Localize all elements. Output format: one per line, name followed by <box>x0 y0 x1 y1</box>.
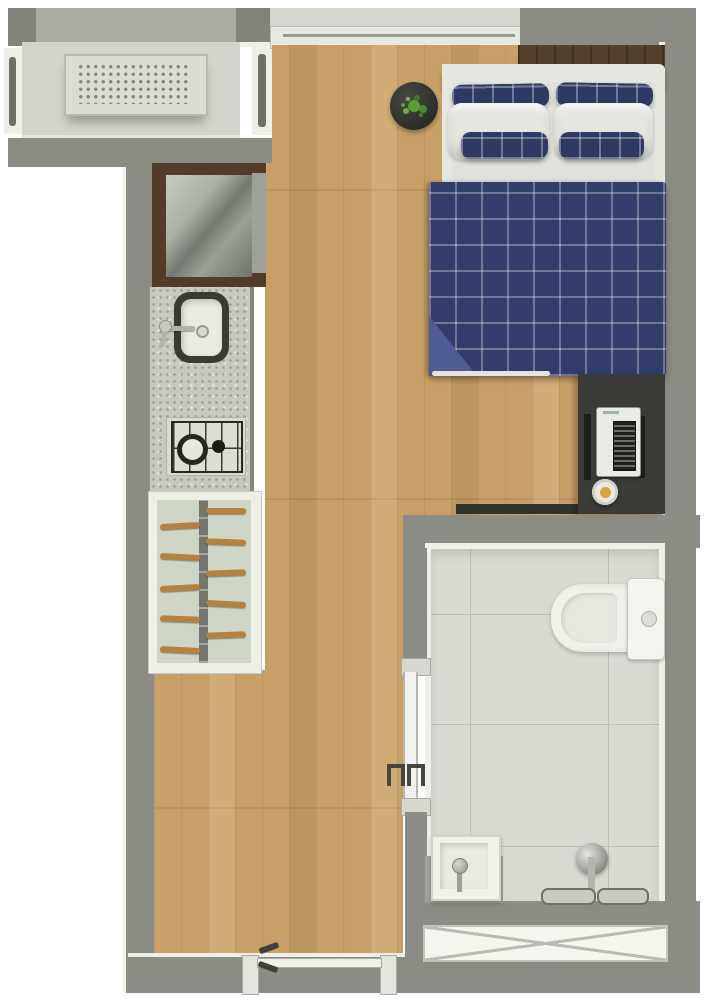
top-wall-right <box>520 8 666 45</box>
bathroom-vent-window <box>423 925 668 962</box>
bathroom-door-handle-outer <box>387 764 405 786</box>
bed-rail-right <box>654 68 665 186</box>
shower-grab-bar-right <box>597 888 649 905</box>
burner-small <box>212 440 225 453</box>
louver-vent-left-slot <box>9 57 16 126</box>
drying-rack-rail <box>199 500 208 663</box>
sheet-edge <box>432 371 550 376</box>
bathroom-west-wall-upper <box>403 548 427 662</box>
entry-door-jamb-right <box>380 955 397 995</box>
bottom-wall <box>126 957 700 993</box>
top-window-outer-band <box>270 8 523 26</box>
washbasin-faucet-knob <box>452 858 468 874</box>
rack-rung <box>206 508 246 514</box>
bathroom-west-wall-lower <box>405 812 427 912</box>
bed-duvet <box>429 182 666 376</box>
burner-large <box>177 434 208 465</box>
balcony-top-wall <box>8 8 242 42</box>
refrigerator-top <box>166 175 252 277</box>
plant-leaves <box>408 100 420 112</box>
floor-plan <box>0 0 704 1000</box>
ac-condenser-grille <box>77 63 191 104</box>
desk-side-bar-left <box>584 414 591 480</box>
floor-bottom-edge-line <box>128 953 405 957</box>
desk-appliance-label <box>603 411 619 414</box>
top-window-glass-line <box>283 34 515 37</box>
balcony-corner-left <box>8 8 36 46</box>
plaid-pillow-small-right <box>559 132 644 159</box>
desk-appliance-grille <box>613 421 636 471</box>
toilet-seat <box>561 593 617 643</box>
louver-vent-right-slot <box>258 54 266 127</box>
bathroom-door-handle-inner <box>407 764 425 786</box>
right-wall <box>665 8 696 993</box>
plaid-pillow-small-left <box>461 132 548 159</box>
toilet-flush-button <box>641 611 657 627</box>
bowl-contents <box>600 487 611 498</box>
kitchen-sink-drain <box>196 325 209 338</box>
shower-grab-bar-left <box>541 888 596 905</box>
refrigerator-side-panel <box>252 173 266 273</box>
countertop-edge <box>250 287 254 493</box>
